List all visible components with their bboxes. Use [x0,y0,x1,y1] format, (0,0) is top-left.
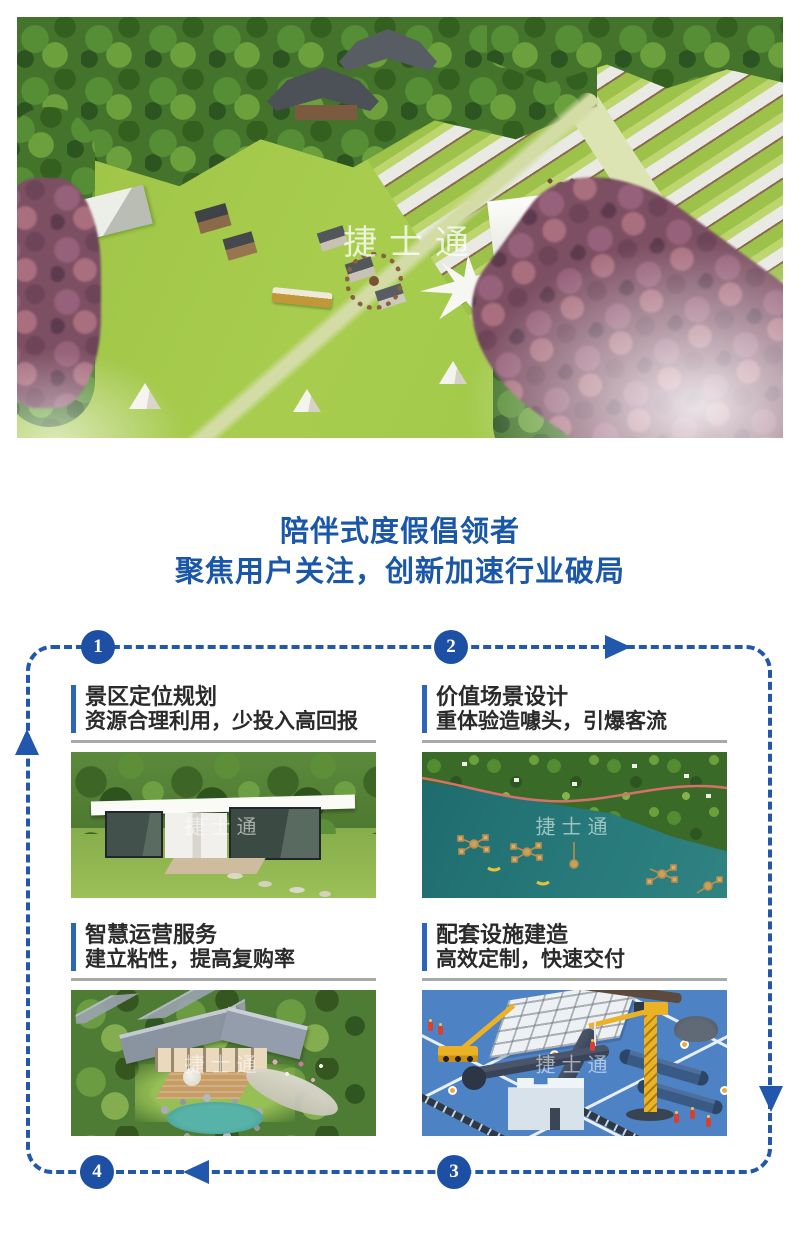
node-dot [448,1086,457,1095]
divider [71,978,376,981]
mobile-crane [438,1046,478,1062]
promo-page: 捷士通 陪伴式度假倡领者 聚焦用户关注，创新加速行业破局 1 2 3 4 景区定… [0,0,800,1248]
card-subtitle: 资源合理利用，少投入高回报 [85,709,376,733]
card-facility-construction: 配套设施建造 高效定制，快速交付 [422,923,727,1136]
step-circle-2: 2 [434,630,468,664]
divider [422,978,727,981]
hero-cabin [194,203,231,234]
step-circle-1: 1 [81,630,115,664]
forest-cabins [462,762,711,798]
cabin-glass-wall [105,811,163,858]
prefab-building [508,1078,584,1130]
card-subtitle: 重体验造噱头，引爆客流 [436,709,727,733]
temple-wall [295,105,357,120]
hero-fog [17,348,187,438]
watermark: 捷士通 [536,1049,614,1078]
hero-fog [463,238,783,438]
card-image-construction-site: 捷士通 [422,990,727,1136]
card-header: 配套设施建造 高效定制，快速交付 [422,923,727,971]
headline: 陪伴式度假倡领者 聚焦用户关注，创新加速行业破局 [0,512,800,592]
card-title: 智慧运营服务 [85,923,376,947]
worker [674,1114,679,1123]
pond [167,1102,263,1134]
tower-crane-mast [644,1012,657,1112]
worker [428,1022,433,1031]
card-image-garden-cottage: 捷士通 [71,990,376,1136]
card-title: 配套设施建造 [436,923,727,947]
kayaks [488,868,549,884]
divider [71,740,376,743]
shore-road [422,778,727,801]
card-title: 景区定位规划 [85,685,376,709]
card-smart-operation: 智慧运营服务 建立粘性，提高复购率 捷士通 [71,923,376,1136]
watermark: 捷士通 [536,811,614,840]
temple-building [267,29,442,141]
card-header: 景区定位规划 资源合理利用，少投入高回报 [71,685,376,733]
headline-line2: 聚焦用户关注，创新加速行业破局 [0,552,800,592]
stepping-stones [221,870,351,898]
card-image-aerial-lake: 捷士通 [422,752,727,898]
arrow-right-icon [605,635,631,659]
hero-image: 捷士通 [17,17,783,438]
arrow-up-icon [15,729,39,755]
process-flow-border: 1 2 3 4 景区定位规划 资源合理利用，少投入高回报 [26,645,772,1174]
step-circle-3: 3 [437,1155,471,1189]
pipe-flange [462,1066,486,1090]
divider [422,740,727,743]
card-subtitle: 高效定制，快速交付 [436,947,727,971]
hero-bus [271,287,332,308]
card-subtitle: 建立粘性，提高复购率 [85,947,376,971]
card-header: 价值场景设计 重体验造噱头，引爆客流 [422,685,727,733]
watermark: 捷士通 [185,1049,263,1078]
card-title: 价值场景设计 [436,685,727,709]
temple-roof [339,29,437,71]
arrow-down-icon [759,1086,783,1112]
flower-bed [267,1052,329,1094]
worker [706,1118,711,1127]
card-scenic-positioning: 景区定位规划 资源合理利用，少投入高回报 捷士通 [71,685,376,898]
worker [690,1110,695,1119]
watermark: 捷士通 [185,811,263,840]
arrow-left-icon [183,1160,209,1184]
card-header: 智慧运营服务 建立粘性，提高复购率 [71,923,376,971]
step-circle-4: 4 [80,1155,114,1189]
card-scene-design: 价值场景设计 重体验造噱头，引爆客流 [422,685,727,898]
gravel-pile [674,1016,718,1042]
floating-platforms [458,835,722,893]
hero-tipi-tent [293,389,321,412]
card-image-white-cabin: 捷士通 [71,752,376,898]
worker [438,1026,443,1035]
node-dot [720,1086,727,1095]
service-cards-grid: 景区定位规划 资源合理利用，少投入高回报 捷士通 价 [71,685,727,1136]
watermark: 捷士通 [343,215,481,264]
hero-cabin [223,231,258,260]
building-door [550,1108,560,1130]
headline-line1: 陪伴式度假倡领者 [0,512,800,552]
